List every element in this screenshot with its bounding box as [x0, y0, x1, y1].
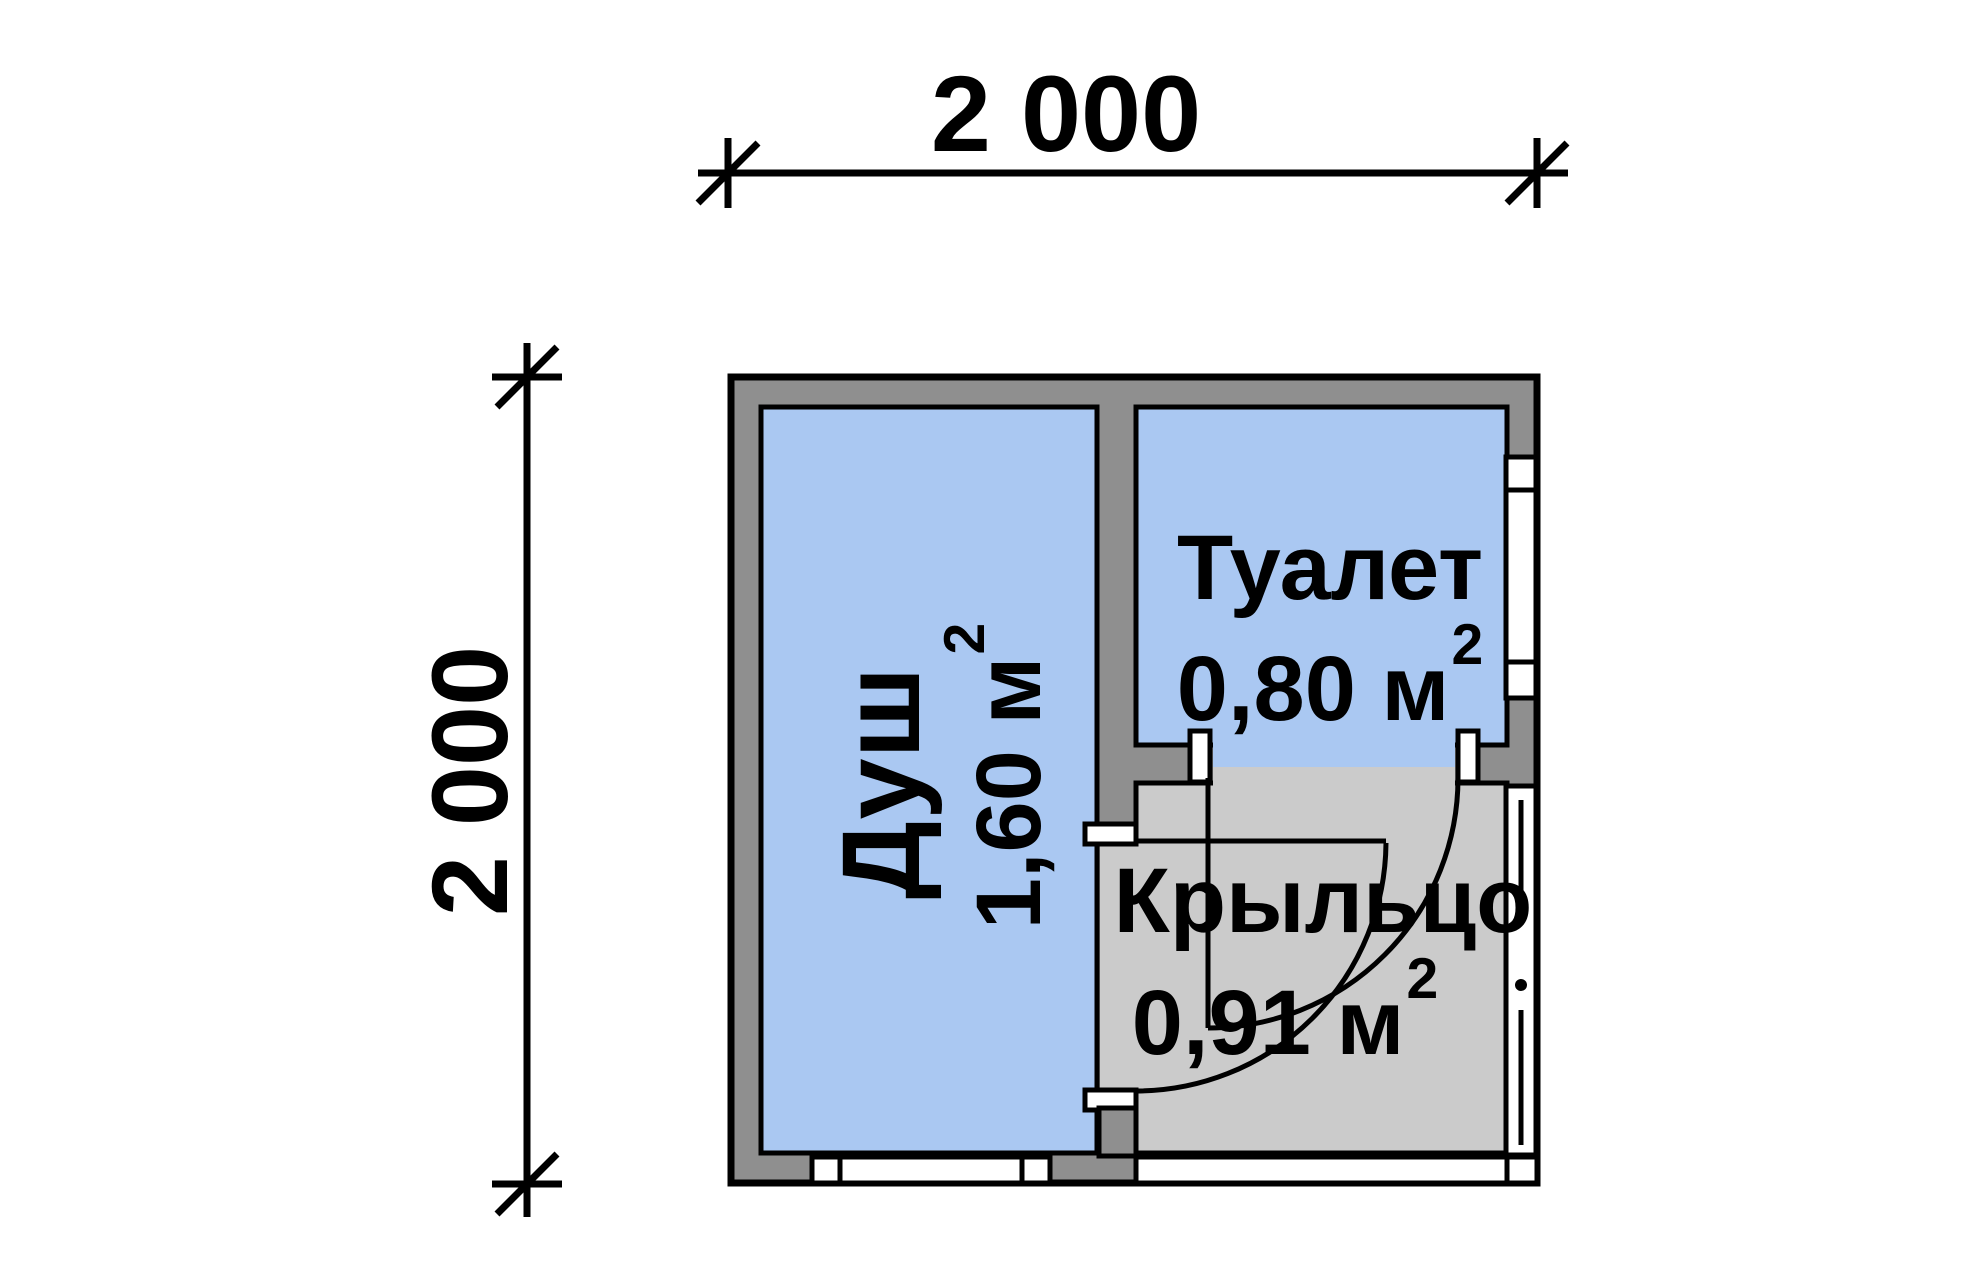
room-label-shower: Душ — [827, 667, 937, 900]
room-area-toilet-value: 0,80 м — [1177, 638, 1450, 740]
room-area-shower-sup: 2 — [933, 623, 997, 655]
shower-south-window — [812, 1157, 1050, 1183]
room-label-porch: Крыльцо — [1114, 855, 1533, 947]
dimension-left-label: 2 000 — [416, 646, 524, 916]
toilet-east-window — [1506, 457, 1536, 698]
room-area-porch-sup: 2 — [1406, 947, 1438, 1011]
floor-plan-canvas: 2 000 2 000 Душ 1,60 м2 Туалет 0,80 м2 К… — [0, 0, 1978, 1272]
room-area-toilet-sup: 2 — [1451, 613, 1483, 677]
dimension-top-label: 2 000 — [931, 60, 1201, 168]
room-area-porch: 0,91 м2 — [1132, 975, 1438, 1069]
room-label-toilet: Туалет — [1177, 522, 1483, 614]
porch-east-railing — [1506, 786, 1536, 1155]
room-area-shower: 1,60 м2 — [961, 623, 1055, 929]
room-area-toilet: 0,80 м2 — [1177, 641, 1483, 735]
room-area-shower-value: 1,60 м — [958, 657, 1060, 930]
toilet-doorway-opening — [1213, 741, 1455, 788]
porch-south-opening — [1136, 1157, 1537, 1183]
room-area-porch-value: 0,91 м — [1132, 972, 1405, 1074]
